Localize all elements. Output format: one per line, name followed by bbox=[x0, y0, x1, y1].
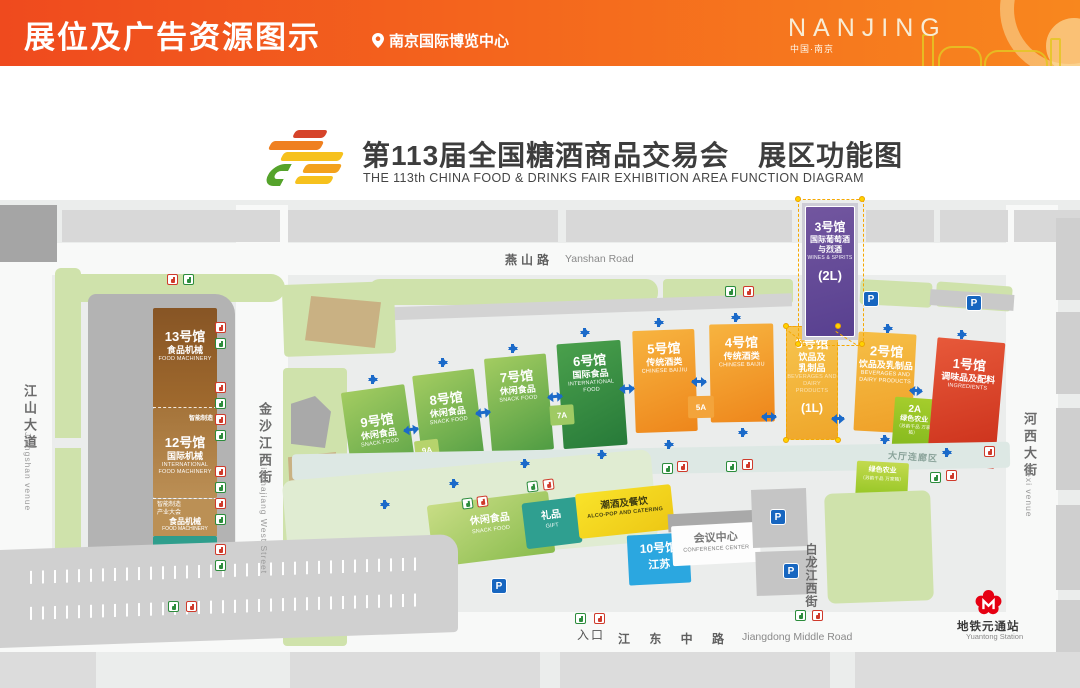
exit-gate-icon bbox=[215, 322, 226, 333]
hall-3-1l-category-zh1: 饮品及 bbox=[798, 352, 825, 363]
logo-stripe bbox=[302, 164, 343, 173]
parking-letter: P bbox=[788, 566, 795, 577]
connector-dot bbox=[795, 196, 801, 202]
logo-stripe bbox=[292, 130, 328, 138]
building-block bbox=[1056, 218, 1080, 300]
flow-arrow bbox=[583, 328, 586, 337]
city-name-zh: 中国·南京 bbox=[790, 42, 834, 55]
hall-2a-number: 2A bbox=[908, 404, 922, 416]
entrance-gate-icon bbox=[183, 274, 194, 285]
exit-gate-icon bbox=[542, 478, 554, 490]
parking-letter: P bbox=[496, 581, 503, 592]
metro-logo-icon bbox=[975, 590, 1002, 617]
exit-gate-icon bbox=[215, 498, 226, 509]
exit-gate-icon bbox=[215, 382, 226, 393]
hall-12-category-zh: 国际机械 bbox=[167, 451, 203, 462]
building-block bbox=[0, 205, 57, 262]
entrance-gate-icon bbox=[215, 430, 226, 441]
logo-stripe bbox=[280, 152, 345, 161]
entrance-gate-icon bbox=[215, 482, 226, 493]
hall-10-region: 江苏 bbox=[648, 558, 671, 573]
entrance-gate-icon bbox=[215, 514, 226, 525]
flow-arrow bbox=[383, 500, 386, 509]
flow-arrow bbox=[441, 358, 444, 367]
exit-gate-icon bbox=[743, 286, 754, 297]
flow-arrow bbox=[762, 415, 776, 418]
exit-gate-icon bbox=[476, 495, 488, 507]
city-name-en: NANJING bbox=[788, 14, 947, 43]
green-area bbox=[55, 268, 81, 438]
hall-12-smart-mfg-tag: 智能制造 bbox=[189, 416, 213, 424]
building-block bbox=[940, 210, 1008, 242]
fair-title-zh: 第113届全国糖酒商品交易会 展区功能图 bbox=[362, 134, 903, 174]
skyline-tower-icon bbox=[1050, 38, 1061, 68]
flow-arrow bbox=[548, 394, 562, 398]
hall-2a-sub: （苏韵千品 万家箱） bbox=[893, 423, 935, 437]
zone-5a: 5A bbox=[688, 396, 714, 418]
location-pin-icon bbox=[372, 33, 384, 48]
venue-label: 南京国际博览中心 bbox=[372, 30, 509, 51]
entrance-gate-icon bbox=[726, 461, 737, 472]
hall-3-2l-category-zh2: 与烈酒 bbox=[818, 245, 842, 255]
page-title: 展位及广告资源图示 bbox=[24, 12, 321, 57]
entrance-gate-icon bbox=[215, 338, 226, 349]
building-block bbox=[1056, 408, 1080, 490]
entrance-gate-icon bbox=[461, 497, 473, 509]
hall-3-2l-category-en: WINES & SPIRITS bbox=[808, 255, 853, 261]
flow-arrow bbox=[741, 428, 744, 437]
hall-2-number: 2号馆 bbox=[870, 344, 904, 361]
exit-gate-icon bbox=[167, 274, 178, 285]
exhibition-map-page: 展位及广告资源图示 南京国际博览中心 NANJING 中国·南京 第113届全国… bbox=[0, 0, 1080, 688]
parking-icon: P bbox=[783, 563, 799, 579]
flow-arrow bbox=[600, 450, 603, 459]
connector-dot bbox=[795, 341, 801, 347]
exit-gate-icon bbox=[677, 461, 688, 472]
entrance-label: 入口 bbox=[577, 626, 605, 643]
entrance-gate-icon bbox=[168, 601, 179, 612]
parking-icon: P bbox=[491, 578, 507, 594]
road-label-hexi-en: Hexi venue bbox=[1024, 465, 1034, 518]
zone-7a-label: 7A bbox=[557, 410, 568, 420]
building-block bbox=[0, 652, 96, 688]
exit-gate-icon bbox=[186, 601, 197, 612]
metro-station-en: Yuantong Station bbox=[966, 632, 1023, 641]
logo-stripe bbox=[268, 141, 325, 150]
gift-zone: 礼品 GIFT bbox=[521, 497, 582, 549]
building-block bbox=[288, 210, 558, 242]
building-block bbox=[855, 652, 1080, 688]
exit-gate-icon bbox=[742, 459, 753, 470]
entrance-gate-icon bbox=[662, 463, 673, 474]
road-label-bailongjiang-zh: 白龙江西街 bbox=[803, 543, 820, 608]
flow-arrow bbox=[960, 330, 963, 339]
hall-12-category-en1: INTERNATIONAL bbox=[162, 462, 208, 469]
hall-3-2l-category-zh1: 国际葡萄酒 bbox=[810, 235, 850, 245]
hall-5-category-en: CHINESE BAIJIU bbox=[642, 367, 688, 375]
hall-12-annex: 智能制造 产业大会 食品机械 FOOD MACHINERY bbox=[153, 499, 217, 536]
logo-stripe bbox=[294, 176, 334, 184]
flow-arrow bbox=[883, 435, 886, 444]
parking-lot bbox=[0, 534, 458, 648]
flow-arrow bbox=[523, 459, 526, 468]
hall-13-number: 13号馆 bbox=[165, 330, 205, 345]
road-label-jinshajiang-en: Jinshajiang West Street bbox=[259, 462, 269, 574]
entrance-gate-icon bbox=[575, 613, 586, 624]
hall-3-2l-number: 3号馆 bbox=[815, 221, 846, 235]
exit-gate-icon bbox=[215, 414, 226, 425]
hall-3-2l: 3号馆 国际葡萄酒 与烈酒 WINES & SPIRITS (2L) bbox=[805, 206, 855, 337]
entrance-gate-icon bbox=[526, 480, 538, 492]
hall-4-number: 4号馆 bbox=[725, 336, 758, 352]
green-area bbox=[824, 490, 934, 604]
building-block bbox=[290, 652, 540, 688]
hall-3-2l-level: (2L) bbox=[818, 268, 842, 283]
flow-arrow bbox=[371, 375, 374, 384]
parking-icon: P bbox=[770, 509, 786, 525]
hall-7: 7号馆 休闲食品 SNACK FOOD bbox=[484, 353, 554, 454]
entrance-gate-icon bbox=[215, 398, 226, 409]
hall-12-category-en2: FOOD MACHINERY bbox=[158, 469, 211, 476]
logo-c-shape bbox=[262, 164, 292, 186]
annex-food-machinery-en: FOOD MACHINERY bbox=[153, 526, 217, 532]
road-label-yanshan-en: Yanshan Road bbox=[565, 253, 634, 265]
conference-en: CONFERENCE CENTER bbox=[683, 544, 749, 554]
hall-12-number: 12号馆 bbox=[165, 436, 205, 451]
skyline-bridge-icon bbox=[938, 46, 982, 68]
exit-gate-icon bbox=[594, 613, 605, 624]
parking-stripes bbox=[20, 593, 420, 620]
fair-logo bbox=[258, 128, 353, 192]
exit-gate-icon bbox=[812, 610, 823, 621]
building-block bbox=[1056, 312, 1080, 394]
exit-gate-icon bbox=[946, 470, 957, 481]
hall-12: 智能制造 12号馆 国际机械 INTERNATIONAL FOOD MACHIN… bbox=[153, 408, 217, 498]
flow-arrow bbox=[511, 344, 514, 353]
parking-letter: P bbox=[775, 512, 782, 523]
hall-3-1l-category-zh2: 乳制品 bbox=[798, 363, 825, 374]
flow-arrow bbox=[620, 387, 634, 391]
connector-dot bbox=[835, 437, 841, 443]
road-label-jiangdong-en: Jiangdong Middle Road bbox=[742, 631, 852, 643]
parking-letter: P bbox=[868, 294, 875, 305]
hall-13: 13号馆 食品机械 FOOD MACHINERY bbox=[153, 308, 217, 408]
flow-arrow bbox=[734, 313, 737, 322]
hall-6-category-en2: FOOD bbox=[583, 386, 600, 394]
plaza-area bbox=[305, 296, 381, 348]
hall-4-category-zh: 传统酒类 bbox=[724, 351, 760, 363]
fair-title-en: THE 113th CHINA FOOD & DRINKS FAIR EXHIB… bbox=[363, 171, 864, 185]
building-block bbox=[62, 210, 280, 242]
road-label-jiangshan-en: Jiangshan venue bbox=[23, 432, 33, 511]
entrance-gate-icon bbox=[795, 610, 806, 621]
entrance-gate-icon bbox=[930, 472, 941, 483]
building-block bbox=[1056, 505, 1080, 590]
building-block bbox=[1056, 600, 1080, 652]
flow-arrow bbox=[657, 318, 660, 327]
hall-4-category-en: CHINESE BAIJIU bbox=[719, 362, 765, 369]
hall-4: 4号馆 传统酒类 CHINESE BAIJIU bbox=[709, 323, 775, 422]
building-block bbox=[866, 210, 934, 242]
connector-dot bbox=[859, 196, 865, 202]
parking-icon: P bbox=[966, 295, 982, 311]
annex-tag1: 智能制造 bbox=[157, 502, 181, 510]
flow-arrow bbox=[886, 324, 889, 333]
parking-icon: P bbox=[863, 291, 879, 307]
zone-7a: 7A bbox=[549, 404, 574, 426]
flow-arrow bbox=[910, 389, 922, 393]
hall-13-category-en: FOOD MACHINERY bbox=[158, 356, 211, 363]
flow-arrow bbox=[832, 417, 844, 420]
gift-en: GIFT bbox=[545, 522, 559, 530]
hall-3-2l-frame: 3号馆 国际葡萄酒 与烈酒 WINES & SPIRITS (2L) bbox=[802, 203, 858, 340]
connector-dot bbox=[859, 341, 865, 347]
hall-2-category-en2: DAIRY PRODUCTS bbox=[859, 376, 911, 385]
hall-3-1l-level: (1L) bbox=[801, 401, 823, 415]
conference-center: 会议中心 CONFERENCE CENTER bbox=[671, 522, 761, 567]
entrance-gate-icon bbox=[215, 560, 226, 571]
hall-3-1l-category-en2: DAIRY PRODUCTS bbox=[787, 381, 837, 394]
zone-5a-label: 5A bbox=[696, 402, 706, 411]
flow-arrow bbox=[692, 380, 706, 383]
exit-gate-icon bbox=[215, 544, 226, 555]
hall-13-category-zh: 食品机械 bbox=[167, 345, 203, 356]
hall-3-1l-category-en1: BEVERAGES AND bbox=[787, 374, 836, 381]
flow-arrow bbox=[452, 479, 455, 488]
hall-5-number: 5号馆 bbox=[647, 341, 681, 357]
parking-letter: P bbox=[971, 298, 978, 309]
building-block bbox=[566, 210, 792, 242]
connector-dot bbox=[783, 323, 789, 329]
connector-dot bbox=[783, 437, 789, 443]
flow-arrow bbox=[667, 440, 670, 449]
flow-arrow bbox=[945, 448, 948, 457]
connector-dot bbox=[835, 323, 841, 329]
building-block bbox=[560, 652, 830, 688]
road-label-yanshan-zh: 燕山路 bbox=[505, 251, 553, 268]
exit-gate-icon bbox=[215, 466, 226, 477]
exit-gate-icon bbox=[984, 446, 995, 457]
venue-name: 南京国际博览中心 bbox=[389, 30, 509, 51]
road-label-jiangdong-zh: 江 东 中 路 bbox=[618, 630, 732, 647]
green-agri-sub: （苏韵千品 万家箱） bbox=[860, 475, 904, 483]
entrance-gate-icon bbox=[725, 286, 736, 297]
